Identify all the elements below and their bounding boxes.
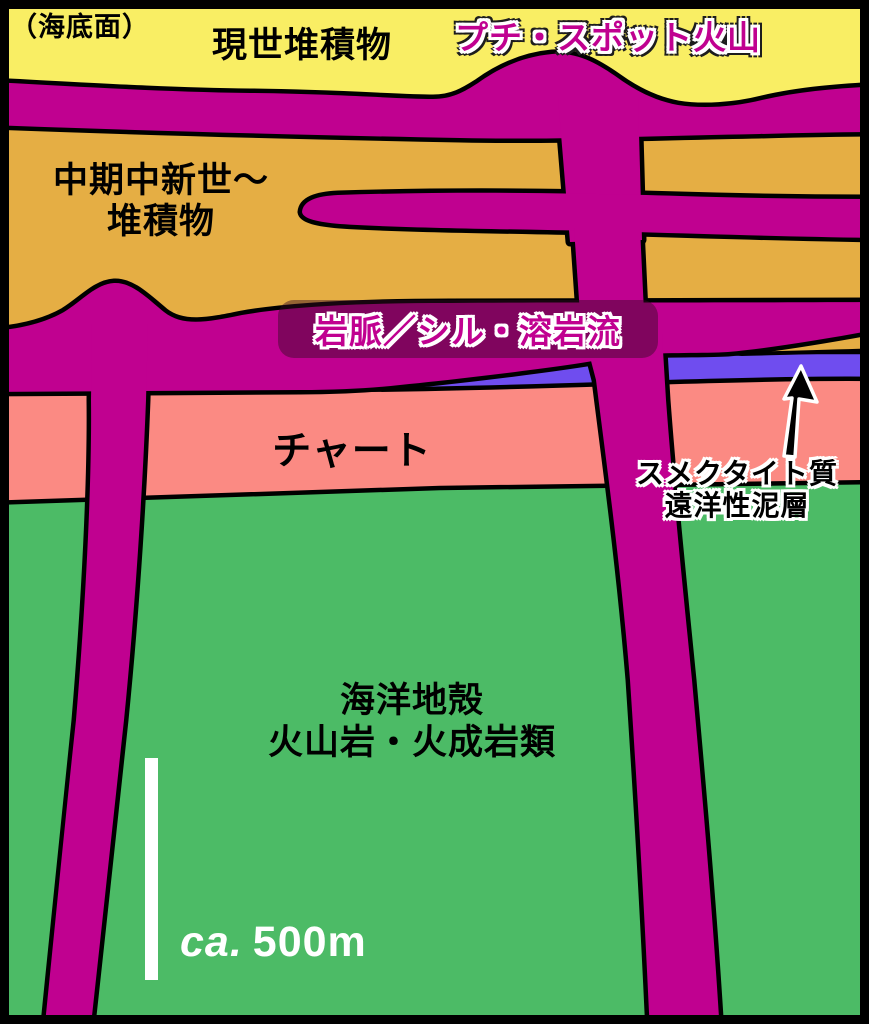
smectite-mud-line1: スメクタイト質 xyxy=(636,458,838,490)
oceanic-crust-line1: 海洋地殻 xyxy=(268,680,556,722)
smectite-mud-label: スメクタイト質 遠洋性泥層 xyxy=(636,458,838,522)
miocene-sediments-label: 中期中新世〜 堆積物 xyxy=(53,160,269,243)
miocene-sediments-line2: 堆積物 xyxy=(53,201,269,242)
scale-label-value: 500m xyxy=(253,918,367,966)
cross-section-diagram: （海底面） 現世堆積物 プチ・スポット火山 中期中新世〜 堆積物 岩脈／シル・溶… xyxy=(0,0,869,1024)
chert-label: チャート xyxy=(272,420,432,476)
miocene-sediments-line1: 中期中新世〜 xyxy=(53,160,269,201)
oceanic-crust-line2: 火山岩・火成岩類 xyxy=(268,722,556,764)
scale-label: ca.500m xyxy=(180,918,367,967)
dike-sill-lava-label-box: 岩脈／シル・溶岩流 xyxy=(278,300,658,358)
dike-sill-lava-label: 岩脈／シル・溶岩流 xyxy=(315,305,621,353)
scale-label-prefix: ca. xyxy=(180,918,243,966)
scale-bar xyxy=(145,758,158,980)
oceanic-crust-label: 海洋地殻 火山岩・火成岩類 xyxy=(268,680,556,764)
seafloor-surface-label: （海底面） xyxy=(10,5,150,44)
petit-spot-volcano-label: プチ・スポット火山 xyxy=(455,11,761,59)
smectite-mud-line2: 遠洋性泥層 xyxy=(636,490,838,522)
modern-sediments-label: 現世堆積物 xyxy=(212,17,392,68)
